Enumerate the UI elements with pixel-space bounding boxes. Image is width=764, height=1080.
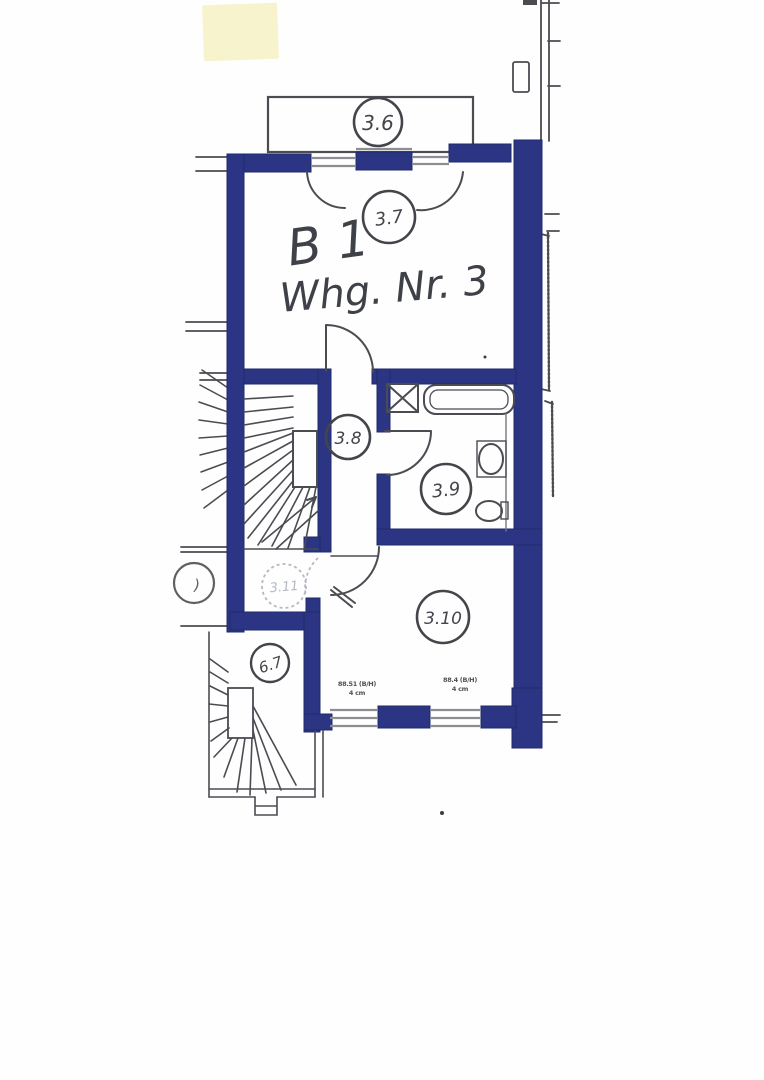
- bath-fixtures: [387, 384, 514, 531]
- partial-number: ): [193, 576, 200, 594]
- shaft-box: [387, 384, 418, 412]
- window-label-right-line2: 4 cm: [452, 685, 469, 693]
- room-3-10-number: 3.10: [424, 609, 462, 629]
- scanned-floor-plan: 3.6 3.7 3.8 3.9 3.10 6.7 ) 3.11: [0, 0, 764, 1080]
- balcony-number: 3.6: [362, 111, 394, 135]
- sink: [477, 441, 506, 477]
- sticky-note: [202, 3, 279, 62]
- room-label-balcony: 3.6: [354, 98, 402, 146]
- room-label-stairwell: 6.7: [251, 644, 289, 682]
- bathtub: [424, 385, 514, 414]
- toilet: [476, 501, 508, 521]
- room-label-3-7: 3.7: [363, 191, 415, 243]
- room-3-11-number: 3.11: [269, 579, 299, 596]
- room-3-7-number: 3.7: [374, 206, 406, 231]
- handwriting-block-id: B 1: [284, 209, 373, 278]
- hall-number: 3.8: [334, 429, 361, 449]
- room-label-partial: ): [174, 563, 214, 603]
- floor-plan-drawing: 3.6 3.7 3.8 3.9 3.10 6.7 ) 3.11: [0, 0, 764, 1080]
- room-label-3-9: 3.9: [421, 464, 471, 514]
- window-label-left-line1: 88.51 (B/H): [338, 680, 377, 688]
- main-staircase: [244, 396, 318, 549]
- room-label-3-8: 3.8: [326, 415, 370, 459]
- stairwell-number: 6.7: [256, 653, 285, 678]
- ink-specks: [440, 356, 487, 816]
- window-label-left-line2: 4 cm: [349, 689, 366, 697]
- window-spec-labels: 88.51 (B/H) 4 cm 88.4 (B/H) 4 cm: [338, 676, 477, 697]
- room-label-3-10: 3.10: [417, 591, 469, 643]
- window-label-right-line1: 88.4 (B/H): [443, 676, 477, 684]
- bath-number: 3.9: [431, 479, 462, 503]
